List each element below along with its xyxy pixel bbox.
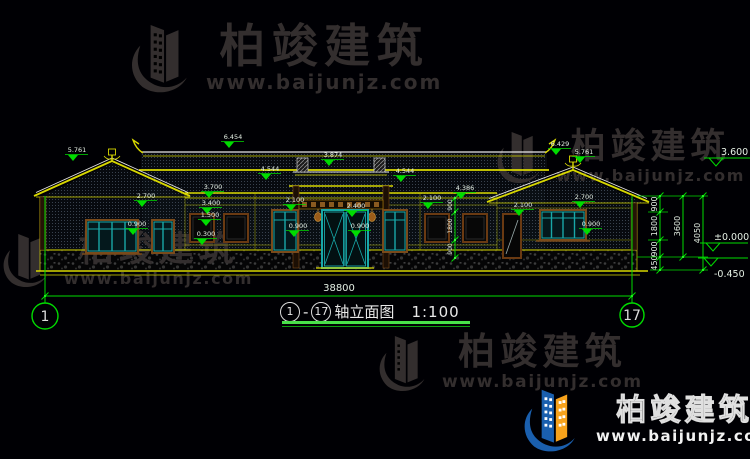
lantern — [315, 213, 322, 222]
dim-tick-dot — [454, 239, 456, 241]
elevation-tag-value: 2.700 — [137, 192, 156, 200]
elevation-tag-value: 2.700 — [575, 193, 594, 201]
dark-window — [463, 214, 487, 242]
level-mark-triangle — [704, 258, 718, 266]
dim-tick-dot — [454, 257, 456, 259]
elevation-tag-value: 2.100 — [423, 194, 442, 202]
lantern — [369, 213, 376, 222]
elevation-linework: 5.7616.4544.5444.5443.8743.7003.4001.500… — [0, 0, 750, 459]
elevation-tag-marker — [423, 203, 433, 209]
level-mark-value: 3.600 — [721, 147, 748, 158]
elevation-tag-value: 5.761 — [68, 146, 87, 154]
level-mark-value: -0.450 — [714, 269, 745, 280]
elevation-tag-marker — [68, 155, 78, 161]
elevation-tag-marker — [261, 174, 271, 180]
dim-chain-value: 4050 — [693, 223, 702, 243]
elevation-tag-value: 3.700 — [204, 183, 223, 191]
drawing-caption: 1 - 17 轴立面图 1:100 — [280, 301, 460, 322]
dim-chain-value: 900 — [447, 199, 454, 211]
axis-bubble-number: 1 — [41, 309, 50, 325]
dark-window — [224, 214, 248, 242]
elevation-tag-value: 0.300 — [197, 230, 216, 238]
caption-underline — [282, 321, 470, 324]
window — [152, 220, 174, 253]
dark-window — [425, 214, 449, 242]
window — [383, 210, 407, 252]
elevation-tag-value: 0.900 — [582, 220, 601, 228]
dim-chain-value: 900 — [650, 196, 659, 211]
side-door — [503, 214, 521, 258]
elevation-tag-value: 0.900 — [128, 220, 147, 228]
dim-chain-value: 3600 — [673, 216, 682, 236]
elevation-tag-value: 4.544 — [396, 167, 415, 175]
elevation-tag-marker — [324, 160, 334, 166]
caption-underline-thin — [282, 326, 470, 327]
elevation-tag-value: 4.386 — [456, 184, 475, 192]
elevation-tag-marker — [396, 176, 406, 182]
elevation-tag-marker — [575, 202, 585, 208]
elevation-tag-value: 0.900 — [351, 222, 370, 230]
elevation-tag-value: 5.761 — [575, 148, 594, 156]
cad-canvas: 柏竣建筑 www.baijunjz.com 柏竣建筑 www.baijunjz.… — [0, 0, 750, 459]
elevation-tag-value: 3.400 — [202, 199, 221, 207]
dim-chain-value: 1800 — [447, 218, 454, 233]
axis-circle-start: 1 — [280, 302, 300, 322]
dim-chain-value: 1800 — [650, 216, 659, 236]
elevation-tag-value: 6.454 — [224, 133, 243, 141]
axis-circle-end: 17 — [311, 302, 331, 322]
dim-tick-dot — [454, 211, 456, 213]
caption-title: 轴立面图 — [334, 301, 394, 322]
dim-tick-dot — [454, 197, 456, 199]
caption-scale: 1:100 — [411, 303, 459, 321]
elevation-tag-value: 2.100 — [514, 201, 533, 209]
caption-dash: - — [303, 303, 308, 321]
main-hall-roof — [133, 140, 555, 170]
elevation-tag-value: 3.874 — [324, 151, 343, 159]
elevation-tag-value: 2.100 — [286, 196, 305, 204]
axis-bubble-number: 17 — [623, 308, 641, 324]
elevation-tag-marker — [204, 192, 214, 198]
dim-chain-value: 900 — [447, 243, 454, 255]
elevation-tag-marker — [137, 201, 147, 207]
elevation-tag-marker — [224, 142, 234, 148]
level-mark-triangle — [709, 158, 723, 166]
dim-chain-value: 900 — [650, 241, 659, 256]
level-mark-triangle — [706, 243, 720, 251]
elevation-tag-value: 1.500 — [201, 211, 220, 219]
overall-dim-value: 38800 — [323, 283, 355, 294]
elevation-tag-value: 4.544 — [261, 165, 280, 173]
entrance-door — [316, 210, 374, 268]
elevation-tag-value: 0.900 — [289, 222, 308, 230]
elevation-tag-marker — [551, 149, 561, 155]
dim-chain-value: 450 — [650, 255, 659, 270]
level-mark-value: ±0.000 — [714, 232, 749, 243]
elevation-tag-value: 6.429 — [551, 140, 570, 148]
elevation-tag-value: 2.400 — [347, 202, 366, 210]
